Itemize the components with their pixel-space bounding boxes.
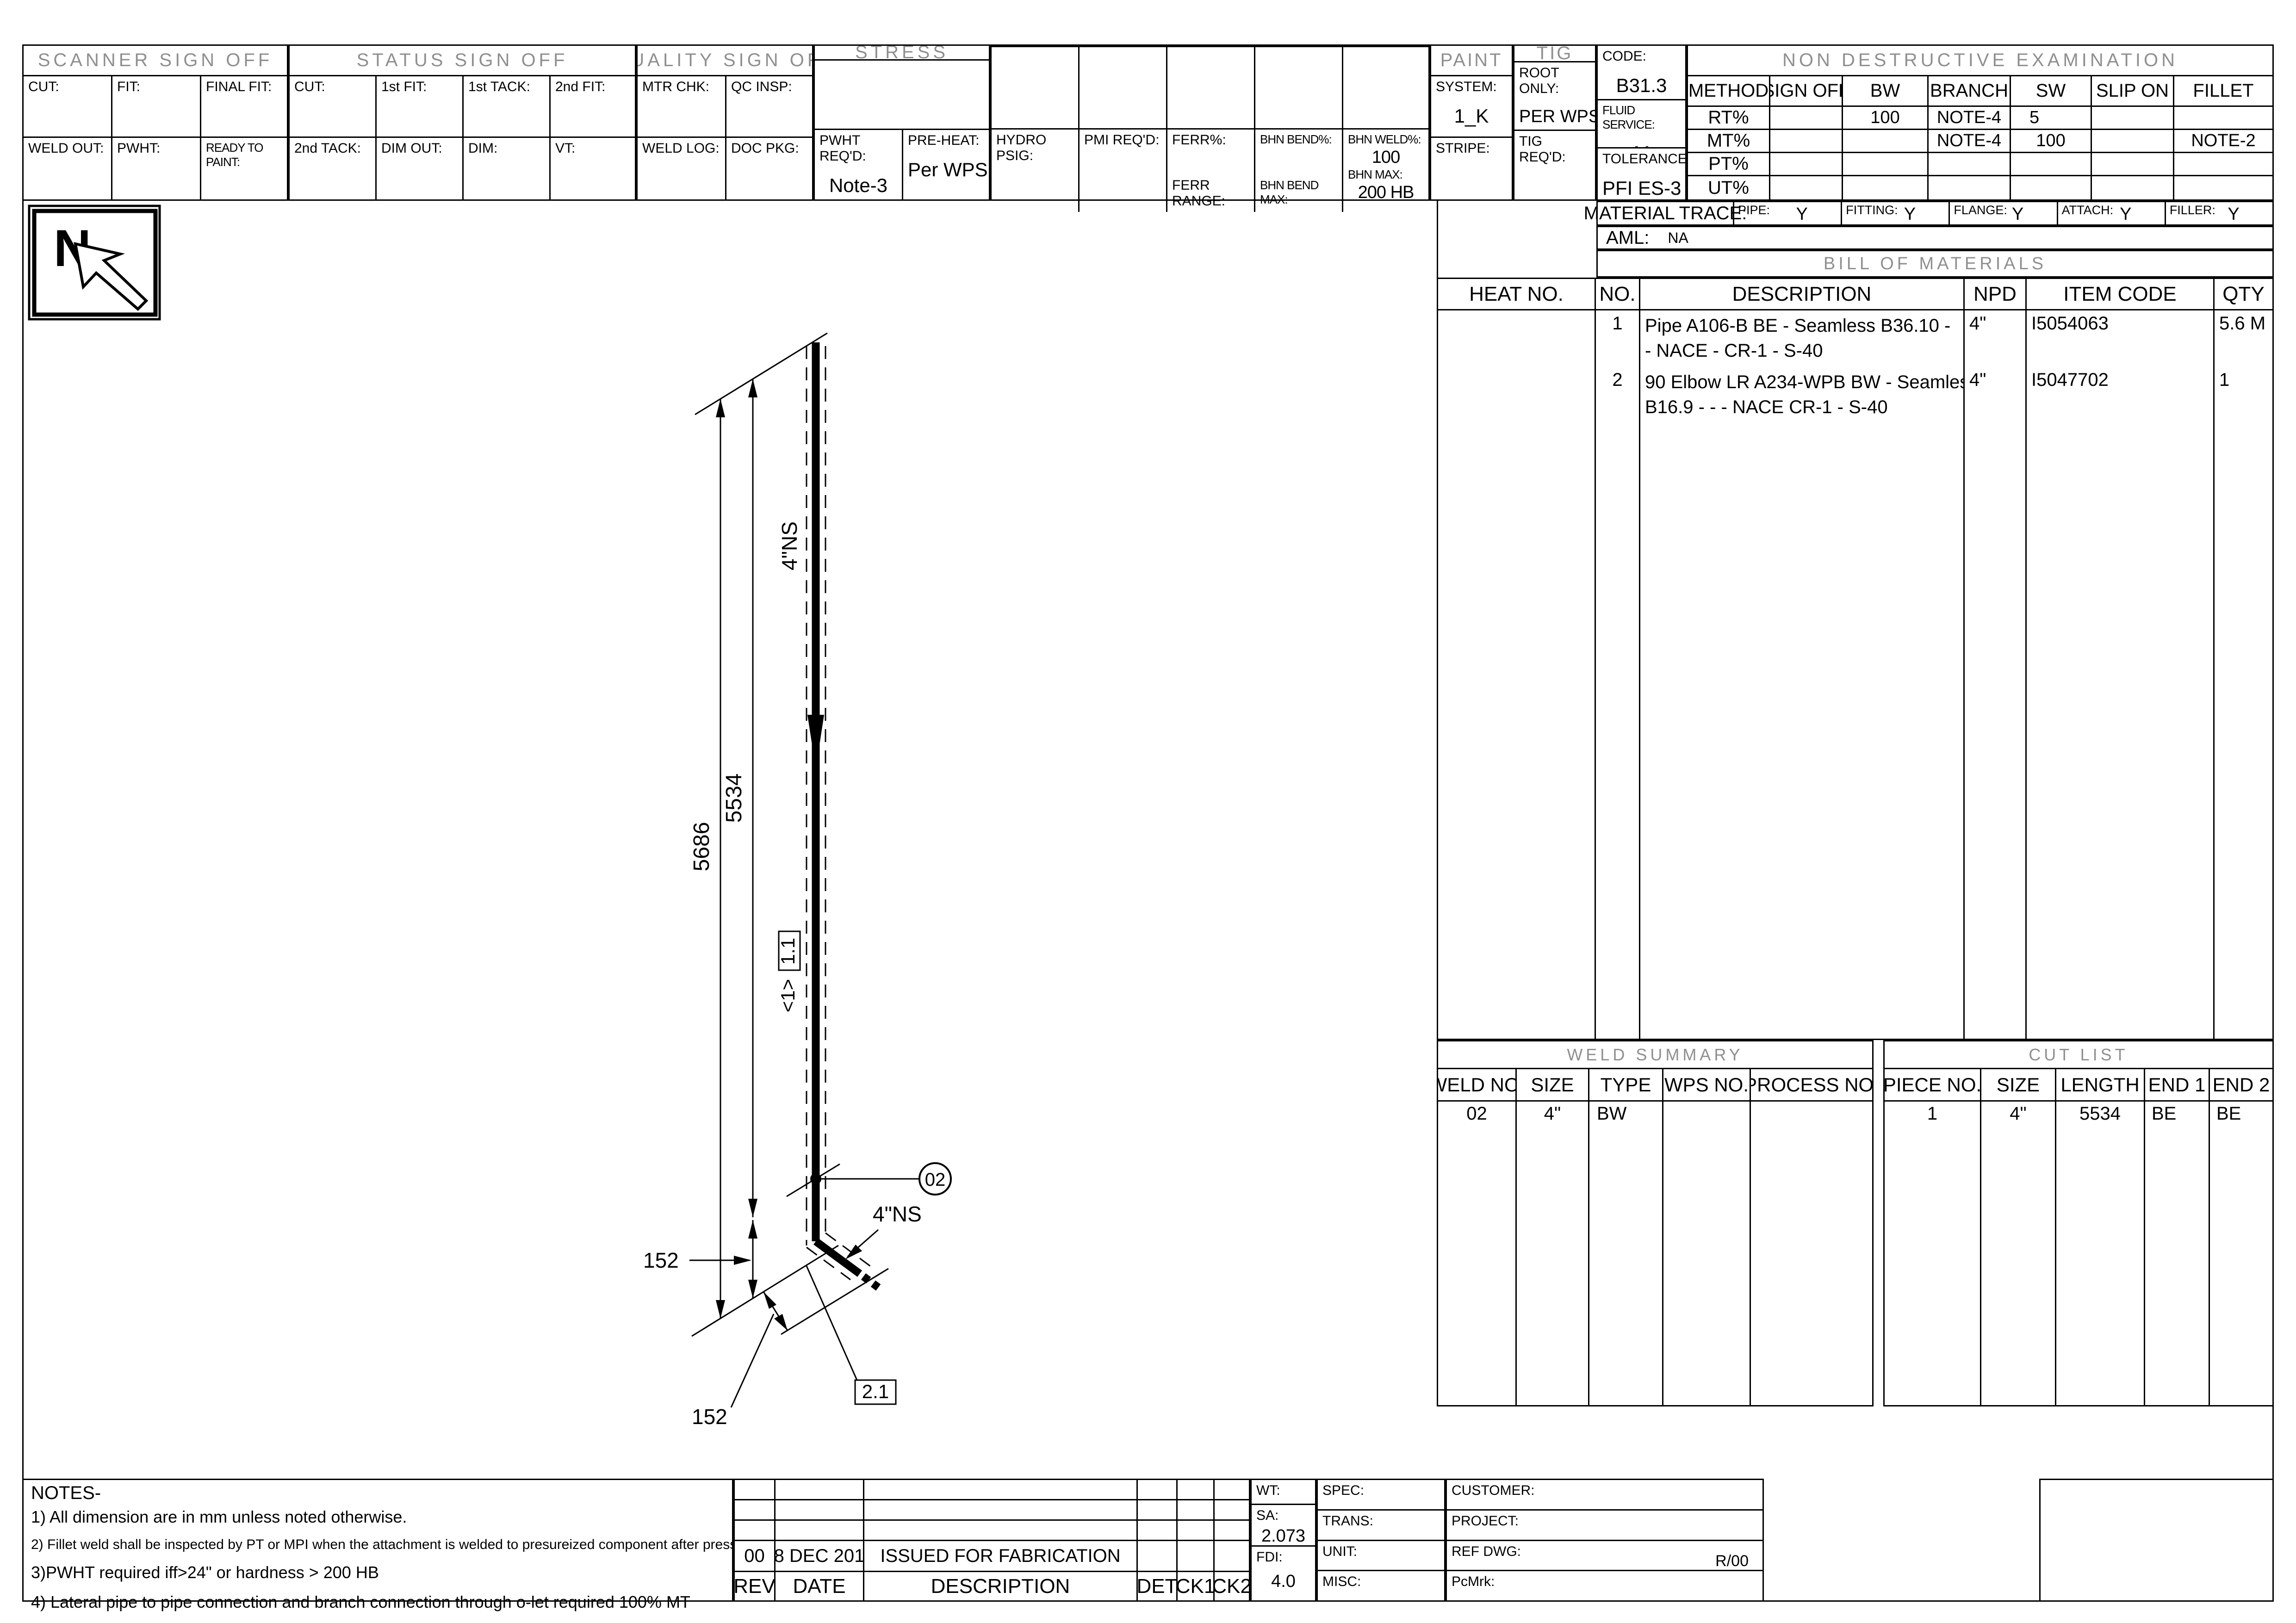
rev-col-date: DATE [776, 1572, 864, 1600]
scanner-signoff-title: SCANNER SIGN OFF [24, 46, 287, 76]
bom-empty-col-desc [1640, 423, 1965, 1039]
trace-flange-cell: FLANGE: Y [1950, 202, 2058, 224]
ws-empty-4 [1663, 1145, 1751, 1405]
status-2ndfit-cell: 2nd FIT: [551, 76, 635, 138]
nde-ut-label: UT% [1688, 176, 1770, 199]
bottom-right-box [2039, 1479, 2274, 1602]
fluid-service-label: FLUID SERVICE: [1602, 103, 1655, 131]
unit-cell: UNIT: [1318, 1541, 1444, 1572]
bom-row2-desc: 90 Elbow LR A234-WPB BW - Seamless B16.9… [1640, 367, 1965, 423]
sa-label: SA: [1256, 1508, 1278, 1523]
bhn-max-label: BHN MAX: [1348, 167, 1402, 181]
ws-empty-1 [1438, 1145, 1517, 1405]
system-label: SYSTEM: [1436, 79, 1497, 94]
root-only-label: ROOT ONLY: [1519, 65, 1559, 96]
cl-col-end1: END 1 [2145, 1069, 2210, 1102]
cl-empty-5 [2210, 1145, 2272, 1405]
quality-weldlog-cell: WELD LOG: [638, 138, 726, 199]
rev-empty-r1c3 [864, 1480, 1138, 1500]
paint-stripe-cell: STRIPE: [1431, 138, 1512, 199]
notes-box: NOTES- 1) All dimension are in mm unless… [22, 1479, 733, 1602]
bom-row1-desc-line1: Pipe A106-B BE - Seamless B36.10 - [1645, 313, 1959, 338]
additional-testing-table: ADDITIONAL TESTING HYDRO PSIG: PMI REQ'D… [990, 44, 1430, 201]
nde-mt-slipon [2092, 130, 2174, 153]
rev-col-ck1: CK1 [1178, 1572, 1215, 1600]
system-value: 1_K [1436, 105, 1507, 127]
aml-row: AML: NA [1596, 226, 2274, 250]
aml-value: NA [1668, 229, 1688, 247]
scanner-pwht-cell: PWHT: [112, 138, 201, 199]
nde-mt-signoff [1770, 130, 1843, 153]
code-label: CODE: [1602, 49, 1646, 64]
sa-cell: SA: 2.073 [1252, 1505, 1315, 1547]
isometric-drawing-sheet: SCANNER SIGN OFF CUT: FIT: FINAL FIT: WE… [0, 0, 2296, 1623]
nde-mt-bw [1843, 130, 1929, 153]
fdi-cell: FDI: 4.0 [1252, 1547, 1315, 1600]
note-4: 4) Lateral pipe to pipe connection and b… [31, 1592, 725, 1612]
cl-col-pieceno: PIECE NO. [1885, 1069, 1981, 1102]
preheat-value: Per WPS [908, 159, 984, 181]
quality-docpkg-cell: DOC PKG: [726, 138, 812, 199]
bhn-weld-label: BHN WELD%: [1348, 132, 1421, 146]
status-2ndtack-cell: 2nd TACK: [290, 138, 377, 199]
panel-divider-line [1437, 201, 1438, 279]
ferr-range-label: FERR RANGE: [1172, 178, 1249, 209]
bom-row1-heat [1438, 310, 1596, 367]
trace-pipe-value: Y [1796, 204, 1808, 224]
scanner-weldout-cell: WELD OUT: [24, 138, 112, 199]
tig-rootonly-cell: ROOT ONLY: PER WPS [1514, 62, 1595, 131]
rev-empty-r3c4 [1138, 1521, 1178, 1541]
rev-empty-r2c3 [864, 1500, 1138, 1521]
ws-col-size: SIZE [1517, 1069, 1589, 1102]
rev-row-date: 08 DEC 2019 [776, 1541, 864, 1572]
cl-row-length: 5534 [2056, 1102, 2145, 1145]
trace-filler-value: Y [2228, 204, 2239, 224]
ws-row-processno [1751, 1102, 1872, 1145]
tig-title: TIG [1514, 46, 1595, 62]
cl-empty-4 [2145, 1145, 2210, 1405]
bom-col-itemcode: ITEM CODE [2027, 279, 2215, 310]
nde-pt-bw [1843, 153, 1929, 176]
stress-pwht-cell: PWHT REQ'D: Note-3 [815, 130, 903, 199]
cl-empty-1 [1885, 1145, 1981, 1405]
nde-col-branch: BRANCH [1929, 76, 2011, 107]
bom-row2-npd: 4" [1965, 367, 2027, 423]
bom-col-no: NO. [1596, 279, 1640, 310]
trace-attach-value: Y [2120, 204, 2131, 224]
paint-system-cell: SYSTEM: 1_K [1431, 76, 1512, 138]
rev-empty-r2c1 [735, 1500, 776, 1521]
nde-rt-fillet [2174, 107, 2272, 130]
trans-cell: TRANS: [1318, 1511, 1444, 1541]
spec-block: SPEC: TRANS: UNIT: MISC: [1316, 1479, 1446, 1602]
nde-col-fillet: FILLET [2174, 76, 2272, 107]
rev-empty-r2c6 [1215, 1500, 1249, 1521]
nde-pt-signoff [1770, 153, 1843, 176]
rev-empty-r1c5 [1178, 1480, 1215, 1500]
spec-cell: SPEC: [1318, 1480, 1444, 1511]
ferr-cell: FERR%: FERR RANGE: [1167, 130, 1255, 212]
bom-col-npd: NPD [1965, 279, 2027, 310]
addtest-empty-3 [1167, 47, 1255, 130]
rev-empty-r3c5 [1178, 1521, 1215, 1541]
status-dimout-cell: DIM OUT: [377, 138, 464, 199]
bom-row1-item: I5054063 [2027, 310, 2215, 367]
rev-row-ck2 [1215, 1541, 1249, 1572]
ws-col-weldno: WELD NO. [1438, 1069, 1517, 1102]
cut-list-table: CUT LIST PIECE NO. SIZE LENGTH END 1 END… [1883, 1040, 2274, 1406]
nde-rt-label: RT% [1688, 107, 1770, 130]
sa-value: 2.073 [1256, 1526, 1310, 1546]
nde-col-signoff: SIGN OFF [1770, 76, 1843, 107]
wt-cell: WT: [1252, 1480, 1315, 1505]
trace-filler-cell: FILLER: Y [2166, 202, 2272, 224]
bom-title: BILL OF MATERIALS [1824, 254, 2047, 274]
code-value: B31.3 [1602, 74, 1681, 97]
quality-signoff-title: QUALITY SIGN OFF [638, 46, 812, 76]
scanner-finalfit-cell: FINAL FIT: [201, 76, 287, 138]
misc-cell: MISC: [1318, 1571, 1444, 1600]
nde-pt-sw [2011, 153, 2092, 176]
bom-empty-col-heat [1438, 423, 1596, 1039]
bom-empty-col-item [2027, 423, 2215, 1039]
bom-row1-no: 1 [1596, 310, 1640, 367]
wt-block: WT: SA: 2.073 FDI: 4.0 [1250, 1479, 1316, 1602]
trace-fitting-value: Y [1904, 204, 1916, 224]
cl-row-end2: BE [2210, 1102, 2272, 1145]
revision-table: 00 08 DEC 2019 ISSUED FOR FABRICATION RE… [733, 1479, 1250, 1602]
cl-empty-3 [2056, 1145, 2145, 1405]
rev-row-description: ISSUED FOR FABRICATION [864, 1541, 1138, 1572]
trace-attach-cell: ATTACH: Y [2058, 202, 2166, 224]
rev-row-ck1 [1178, 1541, 1215, 1572]
refdwg-cell: REF DWG: R/00 [1447, 1541, 1762, 1572]
rev-empty-r2c4 [1138, 1500, 1178, 1521]
nde-ut-sw [2011, 176, 2092, 199]
code-block: CODE: B31.3 FLUID SERVICE: M TOLERANCE: … [1596, 44, 1687, 201]
tolerance-value: PFI ES-3 [1602, 177, 1681, 199]
ws-col-type: TYPE [1589, 1069, 1663, 1102]
stress-empty-cell [815, 61, 989, 130]
cl-col-end2: END 2 [2210, 1069, 2272, 1102]
nde-rt-branch: NOTE-4 [1929, 107, 2011, 130]
note-2: 2) Fillet weld shall be inspected by PT … [31, 1537, 725, 1553]
refdwg-value: R/00 [1715, 1552, 1749, 1570]
nde-rt-sw: 5 [2011, 107, 2092, 130]
fdi-value: 4.0 [1256, 1572, 1310, 1592]
refdwg-label: REF DWG: [1452, 1544, 1521, 1559]
code-cell: CODE: B31.3 [1598, 46, 1685, 100]
scanner-fit-cell: FIT: [112, 76, 201, 138]
nde-ut-fillet [2174, 176, 2272, 199]
nde-title: NON DESTRUCTIVE EXAMINATION [1688, 46, 2272, 76]
bom-row1-desc-line2: - NACE - CR-1 - S-40 [1645, 338, 1959, 363]
status-signoff-table: STATUS SIGN OFF CUT: 1st FIT: 1st TACK: … [288, 44, 636, 201]
tig-table: TIG ROOT ONLY: PER WPS TIG REQ'D: [1513, 44, 1596, 201]
nde-pt-label: PT% [1688, 153, 1770, 176]
bhn-weld-cell: BHN WELD%: 100 BHN MAX: 200 HB [1343, 130, 1428, 212]
cl-row-pieceno: 1 [1885, 1102, 1981, 1145]
nde-rt-bw: 100 [1843, 107, 1929, 130]
quality-signoff-table: QUALITY SIGN OFF MTR CHK: QC INSP: WELD … [636, 44, 813, 201]
customer-block: CUSTOMER: PROJECT: REF DWG: R/00 PcMrk: [1446, 1479, 1764, 1602]
ferr-label: FERR%: [1172, 132, 1226, 148]
bom-row2-item: I5047702 [2027, 367, 2215, 423]
bom-col-heatno: HEAT NO. [1438, 279, 1596, 310]
bom-row2-qty: 1 [2215, 367, 2272, 423]
nde-rt-slipon [2092, 107, 2174, 130]
paint-table: PAINT SYSTEM: 1_K STRIPE: [1430, 44, 1513, 201]
rev-empty-r3c2 [776, 1521, 864, 1541]
cl-col-size: SIZE [1981, 1069, 2056, 1102]
nde-rt-signoff [1770, 107, 1843, 130]
rev-empty-r1c1 [735, 1480, 776, 1500]
bom-col-description: DESCRIPTION [1640, 279, 1965, 310]
bhn-bend-label: BHN BEND%: [1260, 132, 1332, 146]
rev-empty-r3c1 [735, 1521, 776, 1541]
bom-row1-npd: 4" [1965, 310, 2027, 367]
status-cut-cell: CUT: [290, 76, 377, 138]
trace-flange-label: FLANGE: [1954, 203, 2007, 217]
rev-empty-r2c5 [1178, 1500, 1215, 1521]
customer-cell: CUSTOMER: [1447, 1480, 1762, 1511]
bom-col-qty: QTY [2215, 279, 2272, 310]
status-1stfit-cell: 1st FIT: [377, 76, 464, 138]
bom-row2-heat [1438, 367, 1596, 423]
note-3: 3)PWHT required iff>24" or hardness > 20… [31, 1563, 725, 1582]
pwht-reqd-label: PWHT REQ'D: [819, 133, 866, 164]
notes-title: NOTES- [31, 1483, 725, 1504]
root-only-value: PER WPS [1519, 107, 1590, 127]
rev-empty-r1c2 [776, 1480, 864, 1500]
nde-col-bw: BW [1843, 76, 1929, 107]
ws-col-processno: PROCESS NO. [1751, 1069, 1872, 1102]
nde-col-slipon: SLIP ON [2092, 76, 2174, 107]
weld-summary-title: WELD SUMMARY [1438, 1041, 1872, 1069]
weld-summary-table: WELD SUMMARY WELD NO. SIZE TYPE WPS NO. … [1437, 1040, 1874, 1406]
tolerance-label: TOLERANCE: [1602, 151, 1685, 167]
hydro-psig-cell: HYDRO PSIG: [992, 130, 1080, 212]
nde-mt-branch: NOTE-4 [1929, 130, 2011, 153]
nde-ut-bw [1843, 176, 1929, 199]
scanner-signoff-table: SCANNER SIGN OFF CUT: FIT: FINAL FIT: WE… [22, 44, 288, 201]
trace-flange-value: Y [2012, 204, 2023, 224]
rev-col-ck2: CK2 [1215, 1572, 1249, 1600]
trace-attach-label: ATTACH: [2062, 203, 2114, 217]
trace-filler-label: FILLER: [2170, 203, 2215, 217]
nde-pt-branch [1929, 153, 2011, 176]
bom-empty-col-no [1596, 423, 1640, 1039]
bom-row2-desc-line2: B16.9 - - - NACE CR-1 - S-40 [1645, 395, 1959, 420]
rev-col-description: DESCRIPTION [864, 1572, 1138, 1600]
nde-ut-branch [1929, 176, 2011, 199]
bhn-bend-cell: BHN BEND%: BHN BEND MAX: [1255, 130, 1343, 212]
status-1sttack-cell: 1st TACK: [464, 76, 551, 138]
nde-ut-slipon [2092, 176, 2174, 199]
rev-col-det: DET [1138, 1572, 1178, 1600]
bhn-max-value: 200 HB [1348, 183, 1424, 203]
rev-empty-r2c2 [776, 1500, 864, 1521]
bom-title-band: BILL OF MATERIALS [1596, 250, 2274, 278]
stress-title: STRESS [815, 46, 989, 61]
bom-empty-col-qty [2215, 423, 2272, 1039]
material-trace-row: MATERIAL TRACE: PIPE: Y FITTING: Y FLANG… [1596, 201, 2274, 226]
stress-preheat-cell: PRE-HEAT: Per WPS [903, 130, 989, 199]
bhn-weld-value: 100 [1348, 148, 1424, 167]
rev-empty-r3c6 [1215, 1521, 1249, 1541]
pcmrk-cell: PcMrk: [1447, 1571, 1762, 1600]
cl-row-end1: BE [2145, 1102, 2210, 1145]
ws-empty-3 [1589, 1145, 1663, 1405]
quality-qcinsp-cell: QC INSP: [726, 76, 812, 138]
rev-row-det [1138, 1541, 1178, 1572]
ws-row-size: 4" [1517, 1102, 1589, 1145]
fluid-service-value: M [1602, 142, 1681, 149]
nde-ut-signoff [1770, 176, 1843, 199]
addtest-empty-2 [1080, 47, 1167, 130]
status-signoff-title: STATUS SIGN OFF [290, 46, 635, 76]
project-cell: PROJECT: [1447, 1511, 1762, 1541]
status-vt-cell: VT: [551, 138, 635, 199]
nde-mt-label: MT% [1688, 130, 1770, 153]
note-1: 1) All dimension are in mm unless noted … [31, 1507, 725, 1527]
addtest-empty-5 [1343, 47, 1428, 130]
bom-empty-col-npd [1965, 423, 2027, 1039]
bhn-bend-max-label: BHN BEND MAX: [1260, 178, 1337, 207]
bom-row1-qty: 5.6 M [2215, 310, 2272, 367]
ws-row-weldno: 02 [1438, 1102, 1517, 1145]
nde-col-sw: SW [2011, 76, 2092, 107]
addtest-empty-1 [992, 47, 1080, 130]
trace-fitting-cell: FITTING: Y [1842, 202, 1950, 224]
nde-col-method: METHOD [1688, 76, 1770, 107]
ws-col-wpsno: WPS NO. [1663, 1069, 1751, 1102]
cl-empty-2 [1981, 1145, 2056, 1405]
bom-row2-desc-line1: 90 Elbow LR A234-WPB BW - Seamless [1645, 370, 1959, 395]
ws-empty-2 [1517, 1145, 1589, 1405]
rev-empty-r1c4 [1138, 1480, 1178, 1500]
aml-label: AML: [1606, 228, 1649, 248]
ws-row-type: BW [1589, 1102, 1663, 1145]
quality-mtrchk-cell: MTR CHK: [638, 76, 726, 138]
fluid-service-cell: FLUID SERVICE: M [1598, 100, 1685, 149]
ws-row-wpsno [1663, 1102, 1751, 1145]
nde-pt-slipon [2092, 153, 2174, 176]
pwht-reqd-value: Note-3 [819, 174, 897, 197]
trace-pipe-cell: PIPE: Y [1734, 202, 1842, 224]
trace-pipe-label: PIPE: [1738, 203, 1770, 217]
stress-table: STRESS PWHT REQ'D: Note-3 PRE-HEAT: Per … [813, 44, 990, 201]
nde-mt-sw: 100 [2011, 130, 2092, 153]
bom-row1-desc: Pipe A106-B BE - Seamless B36.10 - - NAC… [1640, 310, 1965, 367]
rev-col-rev: REV [735, 1572, 776, 1600]
material-trace-label: MATERIAL TRACE: [1598, 202, 1734, 224]
addtest-empty-4 [1255, 47, 1343, 130]
cl-col-length: LENGTH [2056, 1069, 2145, 1102]
preheat-label: PRE-HEAT: [908, 133, 979, 148]
fdi-label: FDI: [1256, 1549, 1283, 1565]
rev-row-rev: 00 [735, 1541, 776, 1572]
status-dim-cell: DIM: [464, 138, 551, 199]
bom-table: HEAT NO. NO. DESCRIPTION NPD ITEM CODE Q… [1437, 278, 2274, 1040]
cut-list-title: CUT LIST [1885, 1041, 2272, 1069]
rev-empty-r3c3 [864, 1521, 1138, 1541]
tolerance-cell: TOLERANCE: PFI ES-3 [1598, 149, 1685, 199]
trace-fitting-label: FITTING: [1846, 203, 1898, 217]
ws-empty-5 [1751, 1145, 1872, 1405]
paint-title: PAINT [1431, 46, 1512, 76]
bom-row2-no: 2 [1596, 367, 1640, 423]
pmi-reqd-cell: PMI REQ'D: [1080, 130, 1167, 212]
nde-mt-fillet: NOTE-2 [2174, 130, 2272, 153]
tig-reqd-cell: TIG REQ'D: [1514, 131, 1595, 199]
nde-pt-fillet [2174, 153, 2272, 176]
cl-row-size: 4" [1981, 1102, 2056, 1145]
scanner-readytopaint-cell: READY TO PAINT: [201, 138, 287, 199]
scanner-cut-cell: CUT: [24, 76, 112, 138]
nde-table: NON DESTRUCTIVE EXAMINATION METHOD SIGN … [1687, 44, 2274, 201]
rev-empty-r1c6 [1215, 1480, 1249, 1500]
